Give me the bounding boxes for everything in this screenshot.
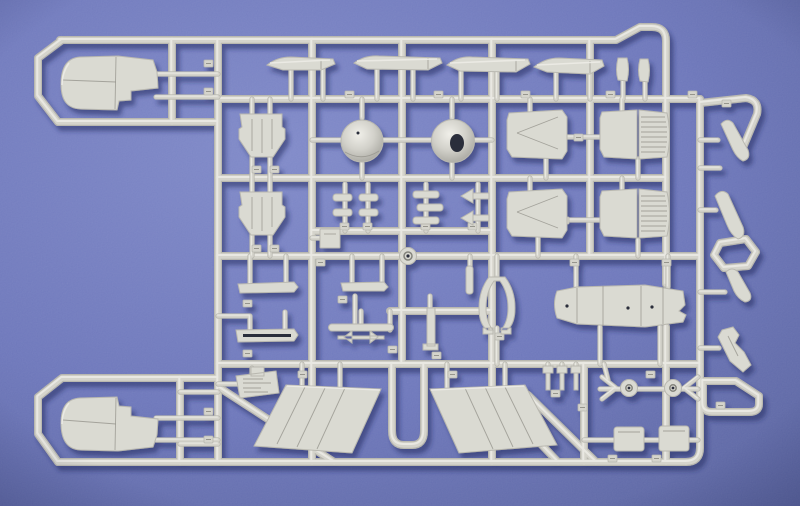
- part-number-tag: [551, 390, 560, 397]
- panel-ribbed-bottom: [600, 189, 670, 238]
- square-plate-small-body: [320, 229, 340, 248]
- small-fin-blade-1-body: [617, 58, 629, 81]
- radome-cone-right: [432, 120, 475, 163]
- part-number-tag: [363, 223, 372, 230]
- small-cylinder-2: [359, 194, 378, 201]
- sprue-photo-canvas: [0, 0, 800, 506]
- small-fin-blade-2: [639, 59, 650, 82]
- slat-grooved-hole: [243, 334, 291, 337]
- wheel-left-dot: [628, 387, 631, 390]
- tailplane-1-body: [267, 57, 335, 70]
- small-cylinder-5-body: [413, 191, 439, 198]
- part-number-tag: [448, 371, 457, 378]
- fuselage-spine-dot: [626, 306, 629, 309]
- tailplane-3-body: [447, 57, 530, 72]
- slat-2-body: [341, 282, 388, 291]
- block-left: [614, 427, 644, 451]
- fuselage-spine: [555, 285, 687, 327]
- small-cylinder-1-body: [333, 194, 352, 201]
- part-number-tag: [662, 259, 671, 266]
- slat-1-body: [238, 282, 298, 293]
- panel-chevron-bottom: [507, 189, 567, 238]
- sprue-center-boss-dot: [406, 254, 409, 257]
- small-cylinder-6-body: [417, 204, 443, 211]
- slat-2: [341, 282, 388, 291]
- part-number-tag: [204, 88, 213, 95]
- small-cylinder-1: [333, 194, 352, 201]
- panel-ribbed-top: [600, 110, 670, 159]
- part-number-tag: [432, 352, 441, 359]
- part-number-tag: [521, 91, 530, 98]
- block-right: [659, 426, 689, 451]
- part-number-tag: [388, 346, 397, 353]
- wheel-right-dot: [672, 387, 675, 390]
- part-number-tag: [316, 259, 325, 266]
- part-number-tag: [652, 455, 661, 462]
- part-number-tag: [574, 134, 583, 141]
- radome-cone-left: [341, 120, 383, 162]
- radome-cone-right-hole: [450, 134, 464, 152]
- small-cylinder-5: [413, 191, 439, 198]
- tailplane-2: [354, 56, 442, 70]
- small-fin-blade-2-body: [639, 59, 650, 82]
- small-cylinder-7: [413, 217, 439, 224]
- fuselage-spine-body: [555, 285, 687, 327]
- part-number-tag: [270, 166, 279, 173]
- part-number-tag: [338, 296, 347, 303]
- part-number-tag: [688, 91, 697, 98]
- part-number-tag: [243, 300, 252, 307]
- part-number-tag: [716, 402, 725, 409]
- small-fin-blade-1: [617, 58, 629, 81]
- part-number-tag: [204, 436, 213, 443]
- slat-grooved: [236, 329, 298, 342]
- square-plate-small: [320, 229, 340, 248]
- rod-small-body: [466, 266, 473, 294]
- part-number-tag: [606, 91, 615, 98]
- part-number-tag: [252, 245, 261, 252]
- small-cylinder-2-body: [359, 194, 378, 201]
- rod-small: [466, 266, 473, 294]
- block-left-body: [614, 427, 644, 451]
- small-cylinder-3-body: [333, 209, 352, 216]
- tailplane-2-body: [354, 56, 442, 70]
- radome-cone-left-body: [341, 120, 383, 162]
- part-number-tag: [204, 408, 213, 415]
- small-cylinder-6: [417, 204, 443, 211]
- wheel-left: [621, 380, 638, 397]
- part-number-tag: [570, 259, 579, 266]
- part-number-tag: [646, 371, 655, 378]
- part-number-tag: [298, 371, 307, 378]
- part-number-tag: [345, 91, 354, 98]
- fuselage-spine-dot: [650, 305, 653, 308]
- small-cylinder-4: [359, 209, 378, 216]
- part-number-tag: [252, 166, 261, 173]
- block-right-body: [659, 426, 689, 451]
- part-number-tag: [270, 245, 279, 252]
- small-cylinder-4-body: [359, 209, 378, 216]
- small-cylinder-7-body: [413, 217, 439, 224]
- fuselage-spine-dot: [565, 304, 568, 307]
- small-cylinder-3: [333, 209, 352, 216]
- part-number-tag: [243, 350, 252, 357]
- radome-cone-left-dot: [357, 132, 360, 135]
- panel-chevron-top: [507, 110, 567, 159]
- part-number-tag: [204, 60, 213, 67]
- part-number-tag: [578, 404, 587, 411]
- part-number-tag: [434, 91, 443, 98]
- part-number-tag: [722, 100, 731, 107]
- tailplane-1: [267, 57, 335, 70]
- part-number-tag: [608, 455, 617, 462]
- tailplane-3: [447, 57, 530, 72]
- slat-1: [238, 282, 298, 293]
- wheel-right: [665, 380, 682, 397]
- sprue-photo: Photograph of a light grey injection-mou…: [0, 0, 800, 506]
- sprue-center-boss: [400, 248, 417, 265]
- part-number-tag: [340, 223, 349, 230]
